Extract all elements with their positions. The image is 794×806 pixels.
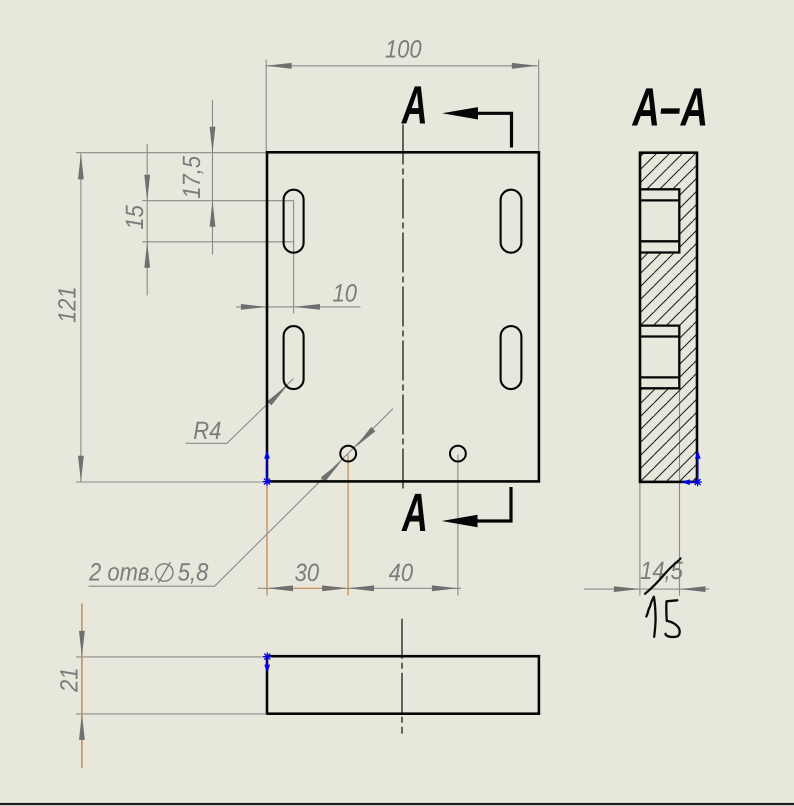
svg-text:5,8: 5,8: [178, 559, 209, 587]
svg-text:2 отв.: 2 отв.: [88, 559, 155, 587]
svg-text:R4: R4: [193, 417, 221, 445]
svg-text:21: 21: [56, 668, 84, 693]
svg-text:10: 10: [333, 280, 358, 308]
svg-text:40: 40: [389, 559, 414, 587]
svg-text:A–A: A–A: [631, 77, 708, 137]
svg-text:A: A: [401, 75, 428, 135]
svg-text:15: 15: [121, 205, 149, 230]
svg-text:100: 100: [385, 36, 422, 64]
svg-text:17,5: 17,5: [178, 156, 206, 199]
svg-text:A: A: [401, 483, 428, 543]
svg-text:30: 30: [295, 559, 320, 587]
svg-text:121: 121: [54, 286, 82, 323]
